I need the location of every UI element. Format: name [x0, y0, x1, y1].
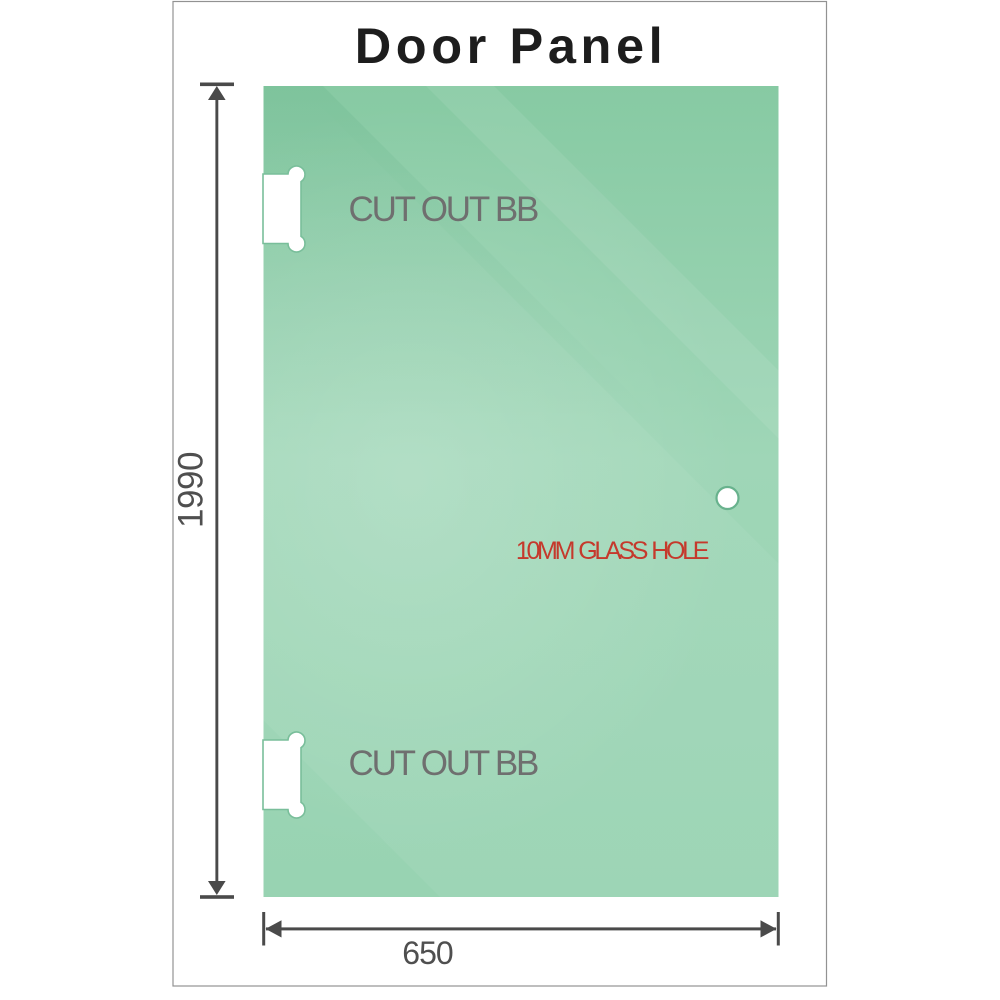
svg-text:CUT OUT BB: CUT OUT BB — [349, 744, 539, 783]
svg-text:650: 650 — [402, 935, 453, 971]
svg-text:1990: 1990 — [172, 452, 211, 528]
svg-text:10MM GLASS HOLE: 10MM GLASS HOLE — [516, 537, 709, 565]
svg-text:Door Panel: Door Panel — [355, 17, 668, 74]
svg-text:CUT OUT BB: CUT OUT BB — [349, 190, 539, 229]
